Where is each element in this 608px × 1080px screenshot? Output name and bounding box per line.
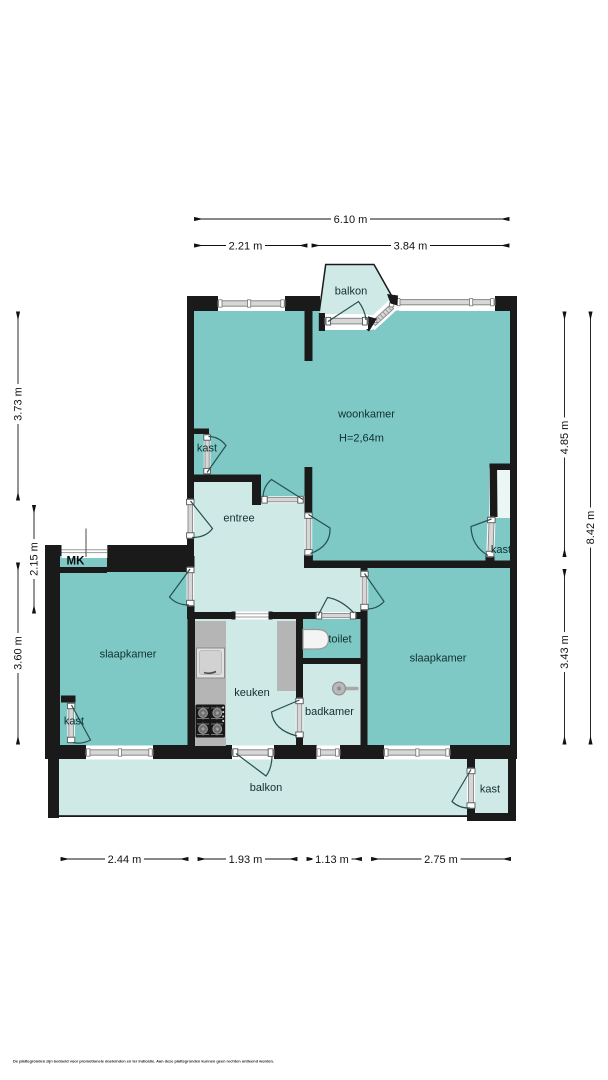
svg-text:2.21 m: 2.21 m: [229, 241, 263, 253]
svg-text:1.93 m: 1.93 m: [229, 854, 263, 866]
svg-text:slaapkamer: slaapkamer: [100, 649, 157, 661]
svg-text:slaapkamer: slaapkamer: [410, 653, 467, 665]
svg-text:woonkamer: woonkamer: [337, 409, 395, 421]
svg-text:De plattegronden zijn bedoeld: De plattegronden zijn bedoeld voor promo…: [13, 1059, 274, 1064]
svg-text:H=2,64m: H=2,64m: [339, 433, 384, 445]
svg-text:8.42 m: 8.42 m: [585, 511, 597, 545]
svg-text:2.44 m: 2.44 m: [108, 854, 142, 866]
svg-text:kast: kast: [64, 716, 84, 728]
svg-text:toilet: toilet: [328, 634, 351, 646]
svg-text:2.75 m: 2.75 m: [424, 854, 458, 866]
svg-text:entree: entree: [223, 513, 254, 525]
svg-text:keuken: keuken: [234, 687, 269, 699]
svg-text:1.13 m: 1.13 m: [315, 854, 349, 866]
svg-text:kast: kast: [197, 443, 217, 455]
svg-text:3.84 m: 3.84 m: [394, 241, 428, 253]
svg-text:4.85 m: 4.85 m: [559, 421, 571, 455]
svg-text:3.73 m: 3.73 m: [13, 387, 25, 421]
svg-text:2.15 m: 2.15 m: [29, 542, 41, 576]
svg-text:kast: kast: [480, 784, 500, 796]
svg-text:kast: kast: [491, 544, 511, 556]
svg-text:balkon: balkon: [250, 782, 282, 794]
svg-text:badkamer: badkamer: [305, 706, 354, 718]
svg-text:6.10 m: 6.10 m: [334, 214, 368, 226]
svg-text:balkon: balkon: [335, 286, 367, 298]
svg-text:3.60 m: 3.60 m: [13, 636, 25, 670]
svg-text:3.43 m: 3.43 m: [559, 635, 571, 669]
svg-text:MK: MK: [67, 556, 86, 568]
